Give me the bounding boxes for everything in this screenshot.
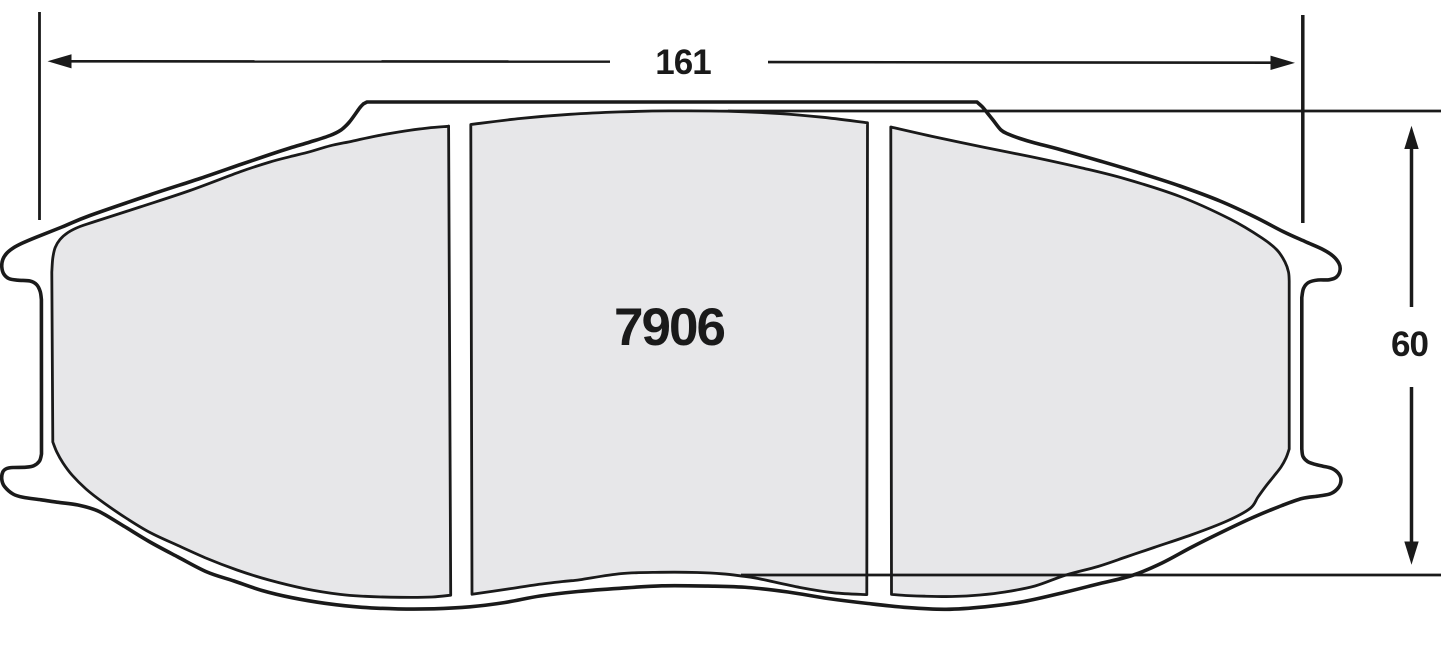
svg-text:7906: 7906 xyxy=(614,298,724,357)
svg-text:60: 60 xyxy=(1391,325,1428,364)
svg-text:161: 161 xyxy=(655,43,711,82)
